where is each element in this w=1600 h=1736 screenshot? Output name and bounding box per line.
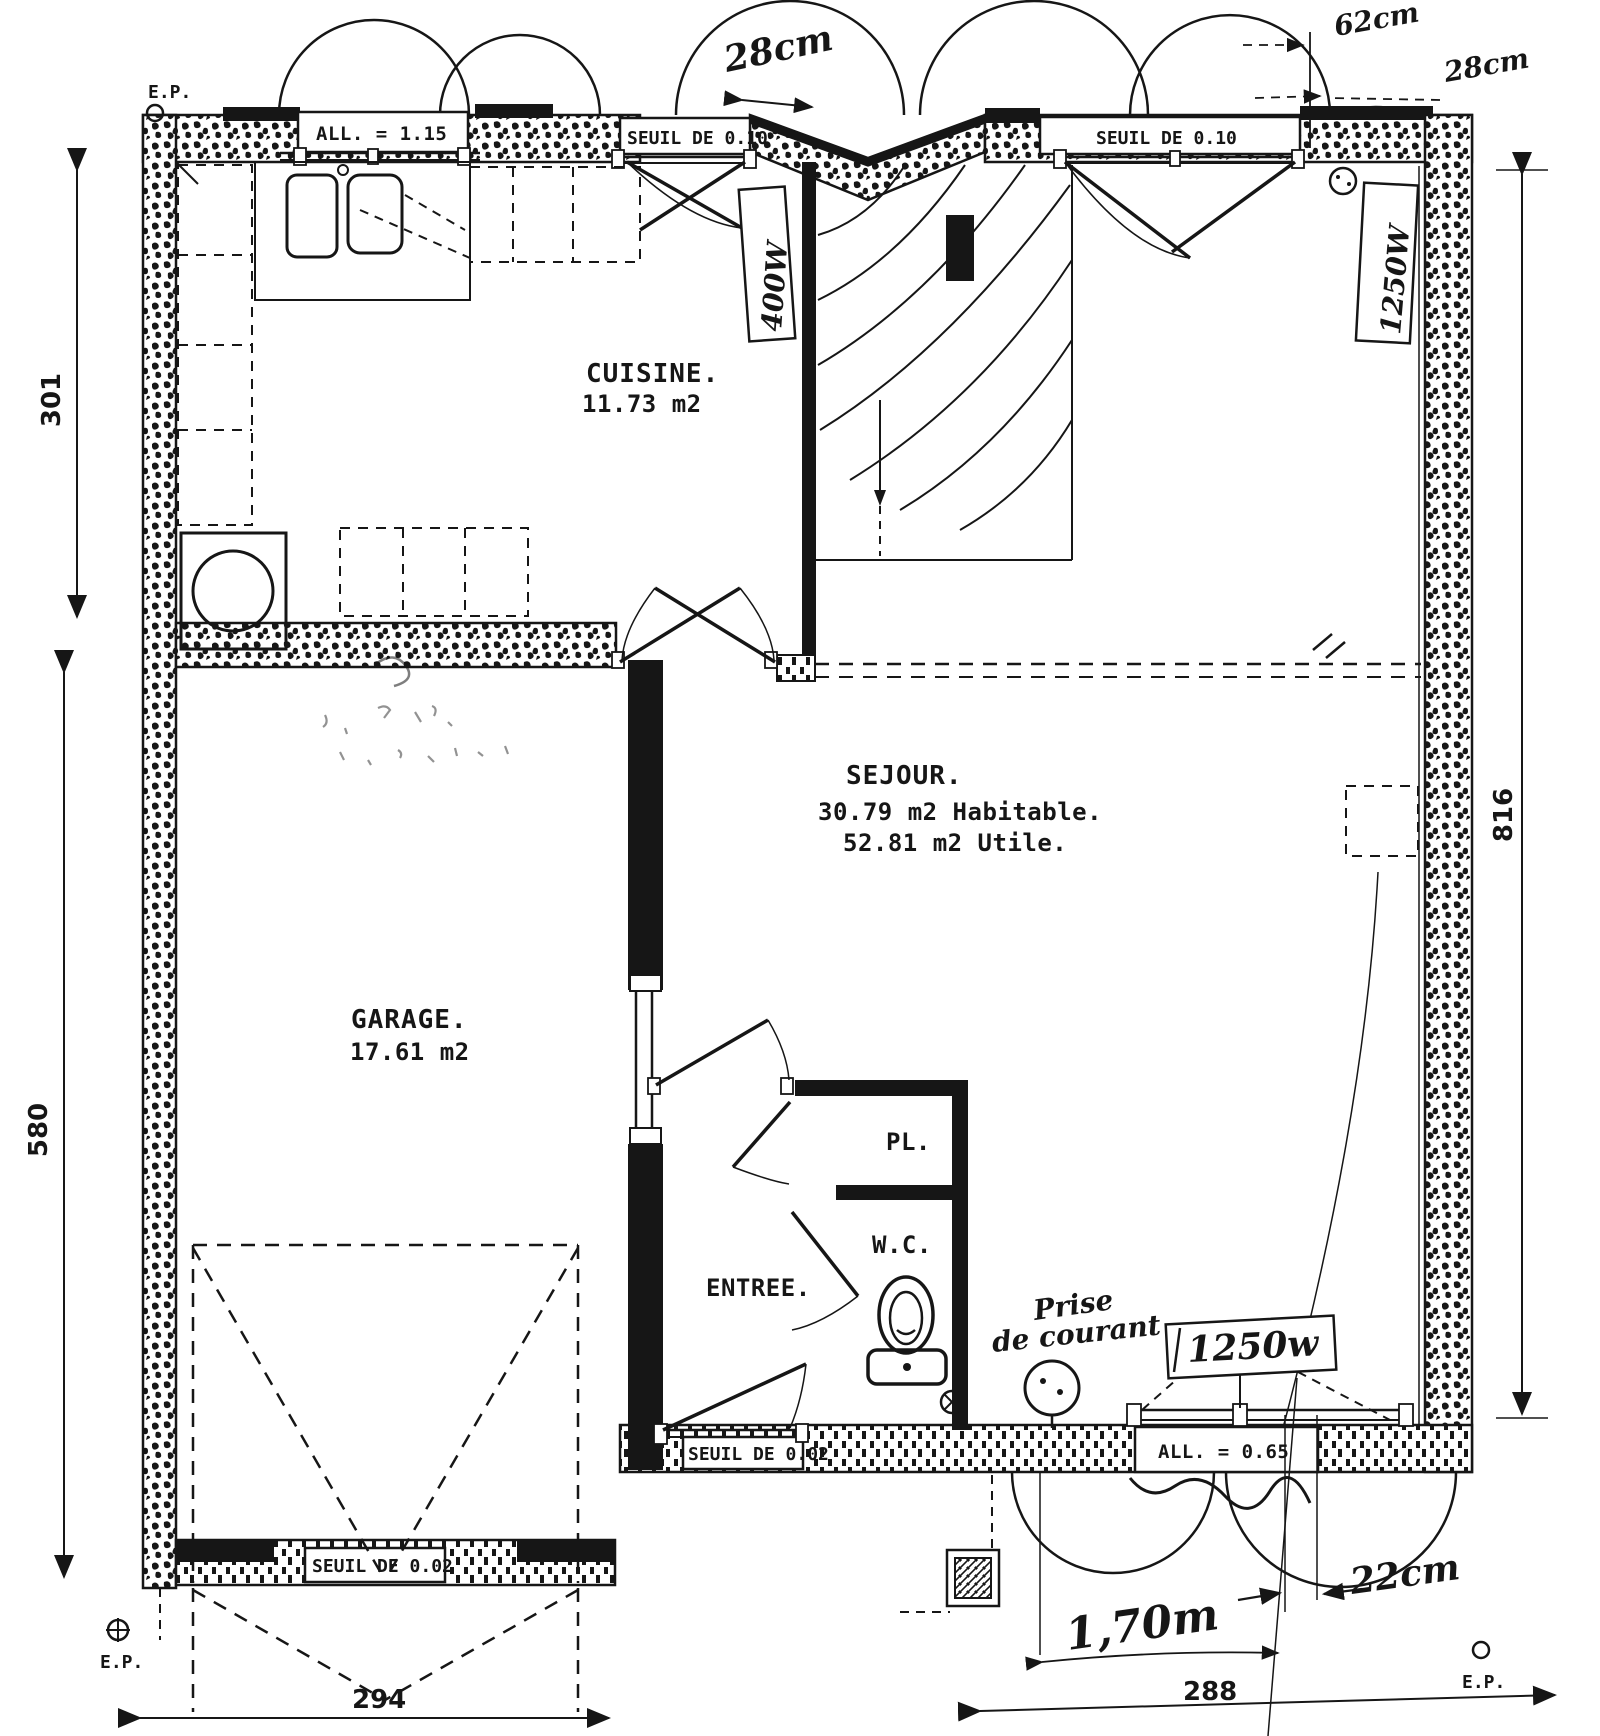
garage-door: [193, 1245, 578, 1712]
room-placard-name: PL.: [886, 1128, 931, 1156]
room-cuisine-name: CUISINE.: [586, 359, 719, 389]
dim-left-lower: 580: [24, 1103, 54, 1157]
hw-corner-offset: 62cm: [1331, 0, 1421, 43]
wall-right: [1425, 115, 1472, 1472]
wall-pl-wc-divider: [836, 1185, 952, 1200]
wall-pl-north: [795, 1080, 968, 1096]
counter-dashed: [470, 167, 640, 262]
hw-radiator-bottom: 1250w: [1186, 1322, 1321, 1371]
sink-basin: [287, 175, 337, 257]
radiator-annotations: 400W 1250W: [739, 183, 1418, 344]
power-outlet-symbol: [1025, 1361, 1079, 1415]
sink-basin: [348, 175, 402, 253]
wall-garage-east-lower: [628, 1144, 663, 1470]
radiator-dashed-box: [1346, 786, 1418, 856]
faucet: [338, 165, 348, 175]
room-garage-name: GARAGE.: [351, 1005, 468, 1035]
room-entree-name: ENTREE.: [706, 1274, 811, 1302]
ep-bottom-right-label: E.P.: [1462, 1672, 1505, 1693]
lintel-block: [985, 108, 1040, 123]
dim-bottom-left: 294: [352, 1685, 406, 1715]
wall-cap-hatched: [777, 655, 815, 681]
drain-square-symbol: [947, 1550, 999, 1606]
lintel-block: [1300, 106, 1433, 120]
ep-top-left-label: E.P.: [148, 82, 191, 103]
lintel-block: [475, 104, 553, 118]
staircase: [816, 165, 1072, 560]
lintel-block: [223, 107, 300, 121]
room-labels: CUISINE. 11.73 m2 SEJOUR. 30.79 m2 Habit…: [350, 359, 1102, 1302]
hw-corner-width: 28cm: [1441, 42, 1532, 90]
room-garage-area: 17.61 m2: [350, 1038, 470, 1066]
door-jamb: [630, 975, 661, 991]
toilet-bowl: [879, 1277, 933, 1353]
hw-top-width: 28cm: [719, 17, 836, 81]
cupboard-dashed: [340, 528, 528, 616]
kitchen-door: [612, 588, 777, 668]
lintel-block: [517, 1540, 615, 1562]
floorplan-scan: ALL. = 1.15 SEUIL DE 0.10 SEUIL DE 0.10 …: [0, 0, 1600, 1736]
wall-pl-wc-east: [952, 1080, 968, 1430]
ep-bottom-left-label: E.P.: [100, 1652, 143, 1673]
lintel-block: [176, 1540, 274, 1562]
room-wc-name: W.C.: [872, 1231, 932, 1259]
room-cuisine-area: 11.73 m2: [582, 390, 702, 418]
ep-bottom-right-symbol: [1473, 1642, 1489, 1658]
stair-down-arrow: [874, 490, 886, 506]
radiator-stairs-label: 400W: [755, 238, 794, 333]
dim-right-side: 816: [1489, 788, 1519, 842]
wall-garage-east-upper: [628, 660, 663, 990]
dim-bottom-right: 288: [1183, 1677, 1237, 1707]
window-label-allege-065: ALL. = 0.65: [1158, 1441, 1289, 1463]
room-sejour-habitable: 30.79 m2 Habitable.: [818, 798, 1102, 826]
room-sejour-name: SEJOUR.: [846, 761, 963, 791]
hw-bay-width: 1,70m: [1062, 1589, 1221, 1661]
stair-newel: [946, 215, 974, 281]
dim-left-upper: 301: [37, 373, 67, 427]
door-label-seuil-010-left: SEUIL DE 0.10: [627, 128, 768, 149]
door-label-seuil-010-right: SEUIL DE 0.10: [1096, 128, 1237, 149]
door-label-seuil-002-garage: SEUIL DE 0.02: [312, 1556, 453, 1577]
washing-machine-drum: [193, 551, 273, 631]
door-label-seuil-002-entry: SEUIL DE 0.02: [688, 1444, 829, 1465]
window-label-allege-115: ALL. = 1.15: [316, 123, 447, 145]
wall-left: [143, 115, 176, 1588]
hw-pier-width: 22cm: [1346, 1546, 1462, 1603]
kitchen-fixtures: [178, 162, 640, 649]
wall-kitchen-stairs: [802, 162, 816, 658]
faded-erased-note: [323, 657, 508, 765]
ceiling-light-symbol: [1330, 168, 1356, 194]
room-sejour-utile: 52.81 m2 Utile.: [843, 829, 1067, 857]
floorplan-drawing: ALL. = 1.15 SEUIL DE 0.10 SEUIL DE 0.10 …: [0, 0, 1600, 1736]
door-jamb: [630, 1128, 661, 1144]
